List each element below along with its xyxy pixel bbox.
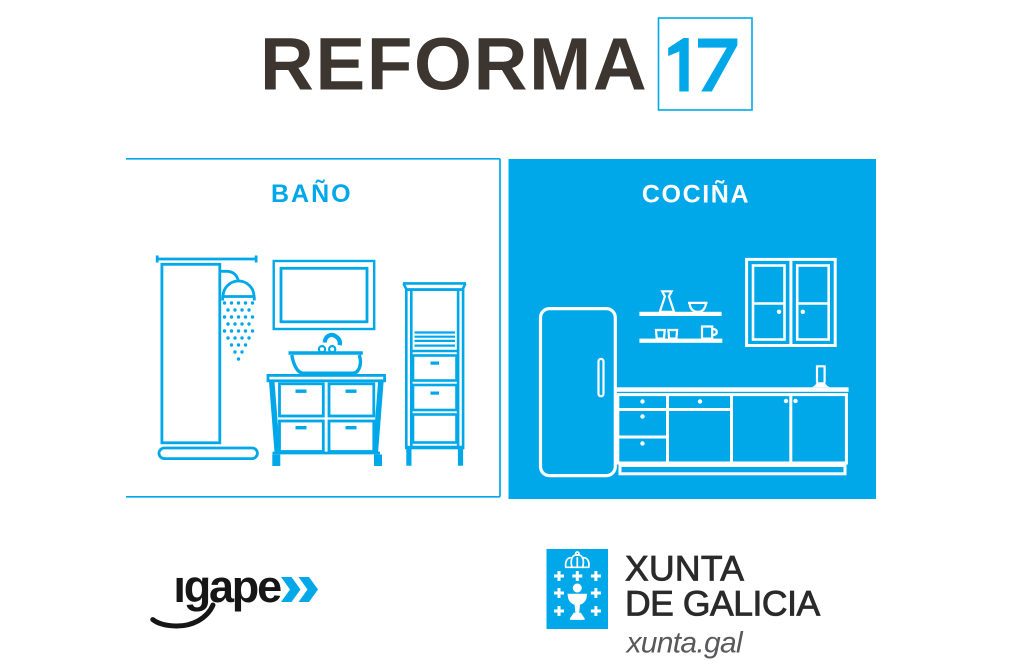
svg-text:COCIÑA: COCIÑA <box>642 178 750 208</box>
svg-text:ıgape: ıgape <box>173 561 281 612</box>
svg-text:XUNTA: XUNTA <box>625 548 744 588</box>
svg-text:xunta.gal: xunta.gal <box>625 627 744 660</box>
svg-text:REFORMA: REFORMA <box>260 23 648 106</box>
svg-text:BAÑO: BAÑO <box>271 178 353 208</box>
svg-text:DE GALICIA: DE GALICIA <box>625 584 821 624</box>
